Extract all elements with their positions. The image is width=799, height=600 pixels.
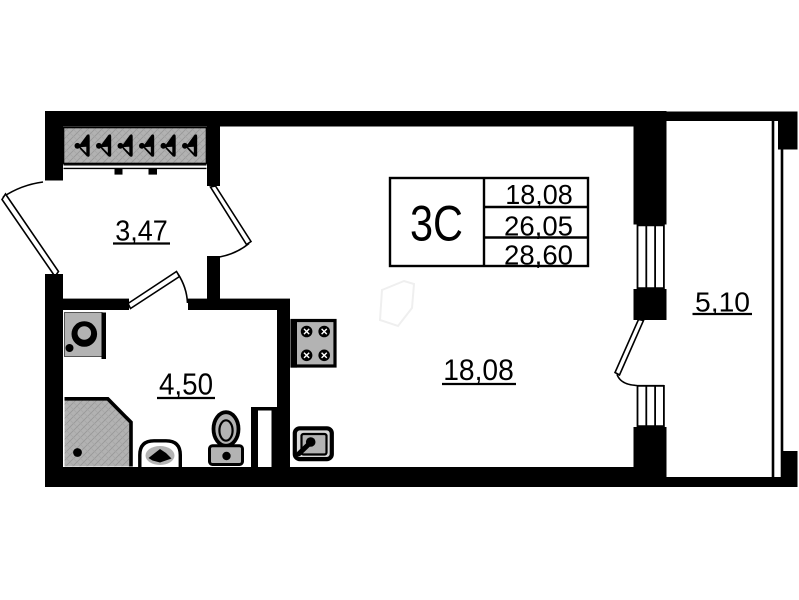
svg-text:18,08: 18,08 <box>443 354 514 387</box>
svg-text:26,05: 26,05 <box>504 211 573 242</box>
svg-text:28,60: 28,60 <box>504 240 573 271</box>
svg-text:18,08: 18,08 <box>505 179 573 210</box>
svg-text:5,10: 5,10 <box>695 287 750 318</box>
svg-text:4,50: 4,50 <box>159 367 213 402</box>
svg-text:3С: 3С <box>410 196 463 252</box>
